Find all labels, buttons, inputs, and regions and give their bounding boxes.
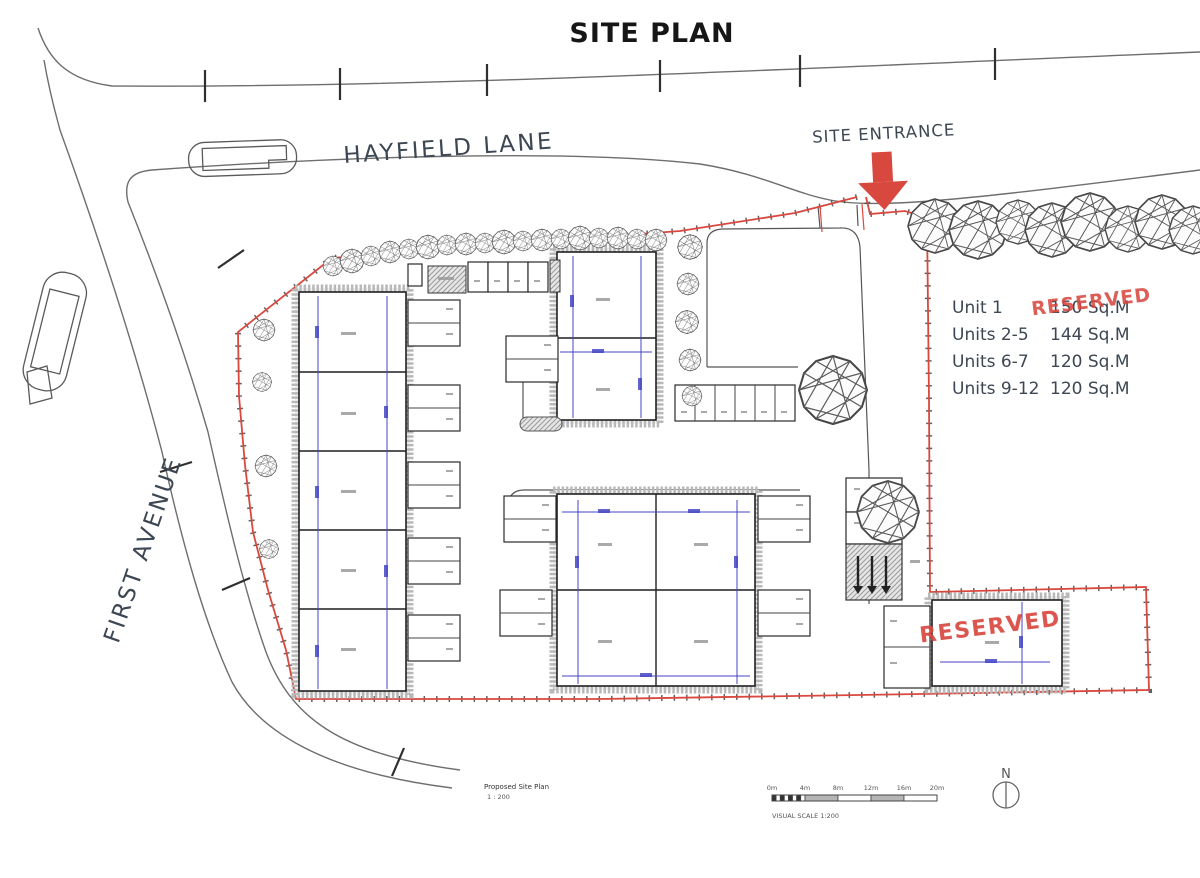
hayfield-lane-label: HAYFIELD LANE (343, 128, 555, 169)
north-label: N (1001, 767, 1011, 782)
scale-tick-20: 20m (930, 784, 945, 792)
legend-row-label: Units 9-12 (952, 379, 1039, 399)
legend-row-label: Units 2-5 (952, 325, 1029, 345)
site-plan-canvas: N 0m 4m 8m 12m 16m 20m VISUAL SCALE 1:20… (0, 0, 1200, 878)
scale-tick-12: 12m (864, 784, 879, 792)
scale-tick-0: 0m (767, 784, 777, 792)
site-plan-drawing: N 0m 4m 8m 12m 16m 20m VISUAL SCALE 1:20… (0, 0, 1200, 878)
bin-store-bar (520, 417, 562, 431)
cycle-stand-icons (853, 556, 891, 594)
legend-row-label: Units 6-7 (952, 352, 1029, 372)
page-title: SITE PLAN (569, 18, 734, 49)
legend-row-value: 144 Sq.M (1050, 325, 1130, 345)
building-left-terrace (295, 288, 410, 695)
site-entrance-label: SITE ENTRANCE (812, 120, 956, 146)
legend-row-value: 120 Sq.M (1050, 379, 1130, 399)
unit-schedule-legend: Unit 1 150 Sq.M Units 2-5 144 Sq.M Units… (952, 284, 1152, 399)
scale-caption: VISUAL SCALE 1:200 (772, 812, 839, 820)
first-avenue-label: FIRST AVENUE (99, 453, 187, 646)
legend-row-value: 120 Sq.M (1050, 352, 1130, 372)
building-middle-block (553, 490, 759, 690)
top-stores-row (408, 260, 560, 293)
scale-tick-8: 8m (833, 784, 843, 792)
legend-row-label: Unit 1 (952, 298, 1003, 318)
scale-tick-16: 16m (897, 784, 912, 792)
titleblock: Proposed Site Plan 1 : 200 (484, 783, 549, 801)
drawing-scale: 1 : 200 (487, 793, 510, 801)
north-arrow-icon: N (993, 767, 1019, 808)
scale-tick-4: 4m (800, 784, 810, 792)
drawing-name: Proposed Site Plan (484, 783, 549, 791)
building-top-pair (553, 248, 660, 424)
vehicle-first-avenue (19, 268, 91, 395)
scale-bar: 0m 4m 8m 12m 16m 20m VISUAL SCALE 1:200 (767, 784, 945, 820)
vehicle-hayfield (188, 139, 297, 177)
